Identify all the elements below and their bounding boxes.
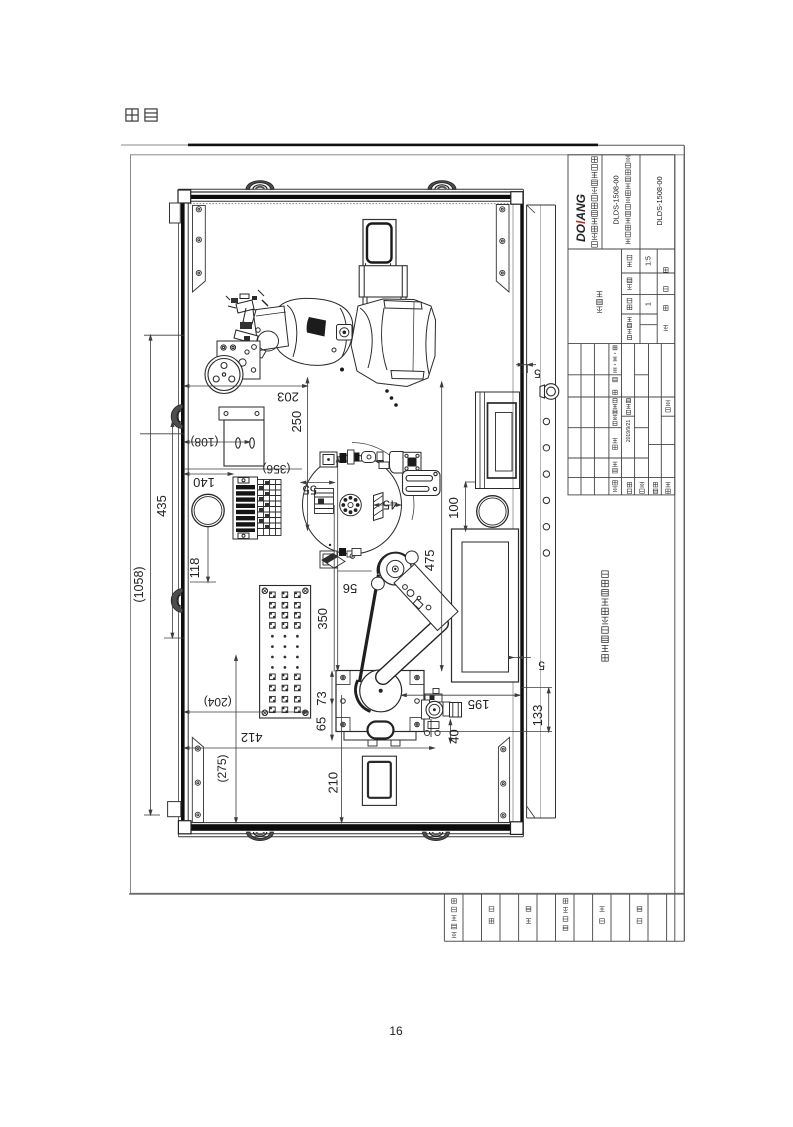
svg-text:(356): (356) (262, 462, 290, 476)
svg-text:55: 55 (302, 483, 316, 498)
svg-text:65: 65 (313, 717, 328, 731)
svg-text:475: 475 (422, 549, 437, 571)
svg-text:(1058): (1058) (132, 566, 146, 602)
svg-text:45: 45 (383, 498, 397, 513)
svg-text:412: 412 (241, 730, 263, 745)
svg-text:203: 203 (277, 390, 299, 405)
svg-text:195: 195 (468, 697, 490, 712)
svg-text:100: 100 (446, 497, 461, 519)
svg-text:(204): (204) (204, 695, 232, 709)
svg-text:DOlANG: DOlANG (574, 194, 588, 242)
svg-text:210: 210 (326, 772, 341, 794)
svg-text:133: 133 (530, 705, 545, 727)
svg-text:40: 40 (447, 729, 462, 743)
svg-text:2019/9/21: 2019/9/21 (626, 420, 632, 442)
svg-text:5: 5 (534, 367, 541, 381)
svg-text:118: 118 (187, 558, 202, 579)
svg-text:(108): (108) (190, 435, 218, 449)
svg-text:5: 5 (538, 659, 545, 673)
svg-text:56: 56 (343, 581, 357, 596)
svg-text:1:5: 1:5 (646, 256, 653, 266)
svg-text:16: 16 (389, 1024, 403, 1038)
svg-text:73: 73 (314, 691, 329, 705)
svg-text:250: 250 (289, 411, 304, 433)
svg-text:DLDS-1508-00: DLDS-1508-00 (655, 176, 664, 225)
svg-text:435: 435 (154, 495, 169, 517)
svg-text:350: 350 (315, 608, 330, 630)
svg-text:(275): (275) (215, 754, 229, 782)
svg-text:1: 1 (646, 302, 653, 306)
svg-text:140: 140 (193, 475, 215, 490)
svg-text:DLDS-1508-00: DLDS-1508-00 (611, 175, 620, 224)
